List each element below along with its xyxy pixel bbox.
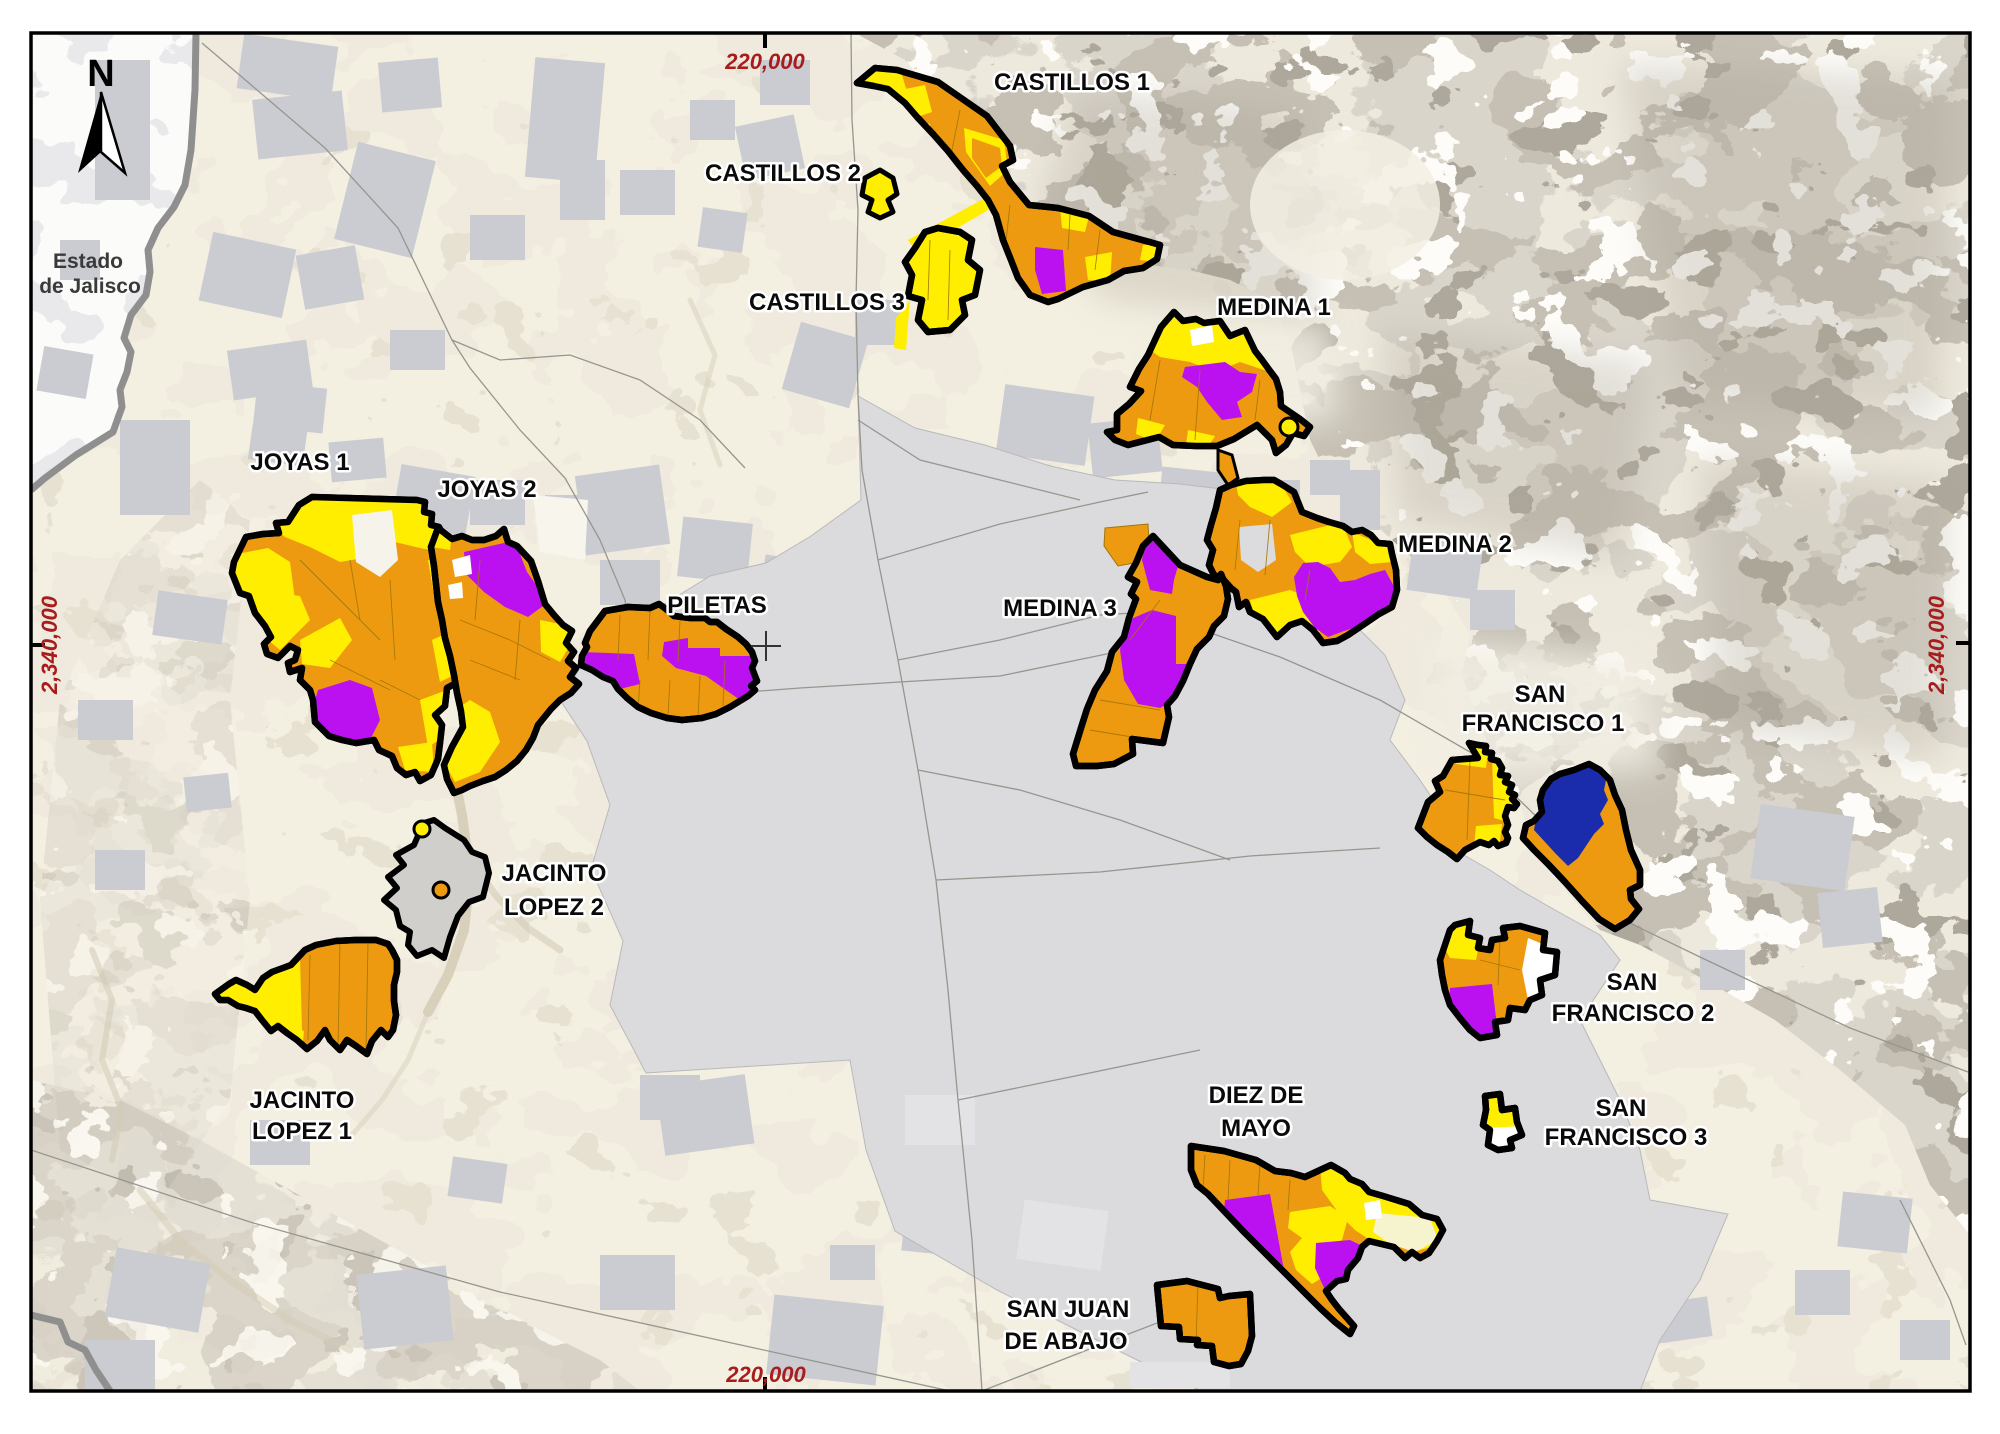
svg-text:N: N [87,53,114,95]
svg-text:FRANCISCO 2: FRANCISCO 2 [1552,1000,1715,1027]
svg-text:CASTILLOS 3: CASTILLOS 3 [749,289,905,316]
svg-text:MEDINA 3: MEDINA 3 [1003,595,1117,622]
svg-text:JOYAS 2: JOYAS 2 [437,476,536,503]
svg-text:2,340,000: 2,340,000 [37,595,62,695]
svg-text:JOYAS 1: JOYAS 1 [250,449,349,476]
svg-text:DE ABAJO: DE ABAJO [1004,1328,1127,1355]
svg-text:220,000: 220,000 [724,49,805,74]
svg-text:SAN: SAN [1607,969,1658,996]
svg-text:MEDINA 2: MEDINA 2 [1398,531,1512,558]
svg-text:DIEZ DE: DIEZ DE [1209,1082,1304,1109]
svg-text:2,340,000: 2,340,000 [1924,595,1949,695]
svg-text:JACINTO: JACINTO [502,860,607,887]
svg-text:CASTILLOS 2: CASTILLOS 2 [705,160,861,187]
svg-text:MAYO: MAYO [1221,1115,1291,1142]
svg-text:SAN JUAN: SAN JUAN [1007,1296,1130,1323]
svg-text:PILETAS: PILETAS [667,592,767,619]
svg-text:LOPEZ 2: LOPEZ 2 [504,894,604,921]
svg-text:JACINTO: JACINTO [250,1087,355,1114]
svg-text:FRANCISCO 3: FRANCISCO 3 [1545,1124,1708,1151]
svg-text:220,000: 220,000 [725,1362,806,1387]
svg-text:LOPEZ 1: LOPEZ 1 [252,1118,352,1145]
svg-text:MEDINA 1: MEDINA 1 [1217,294,1331,321]
svg-text:CASTILLOS 1: CASTILLOS 1 [994,69,1150,96]
svg-text:SAN: SAN [1515,681,1566,708]
svg-text:de Jalisco: de Jalisco [39,275,141,298]
svg-text:SAN: SAN [1596,1095,1647,1122]
svg-text:FRANCISCO 1: FRANCISCO 1 [1462,710,1625,737]
svg-text:Estado: Estado [53,250,123,273]
